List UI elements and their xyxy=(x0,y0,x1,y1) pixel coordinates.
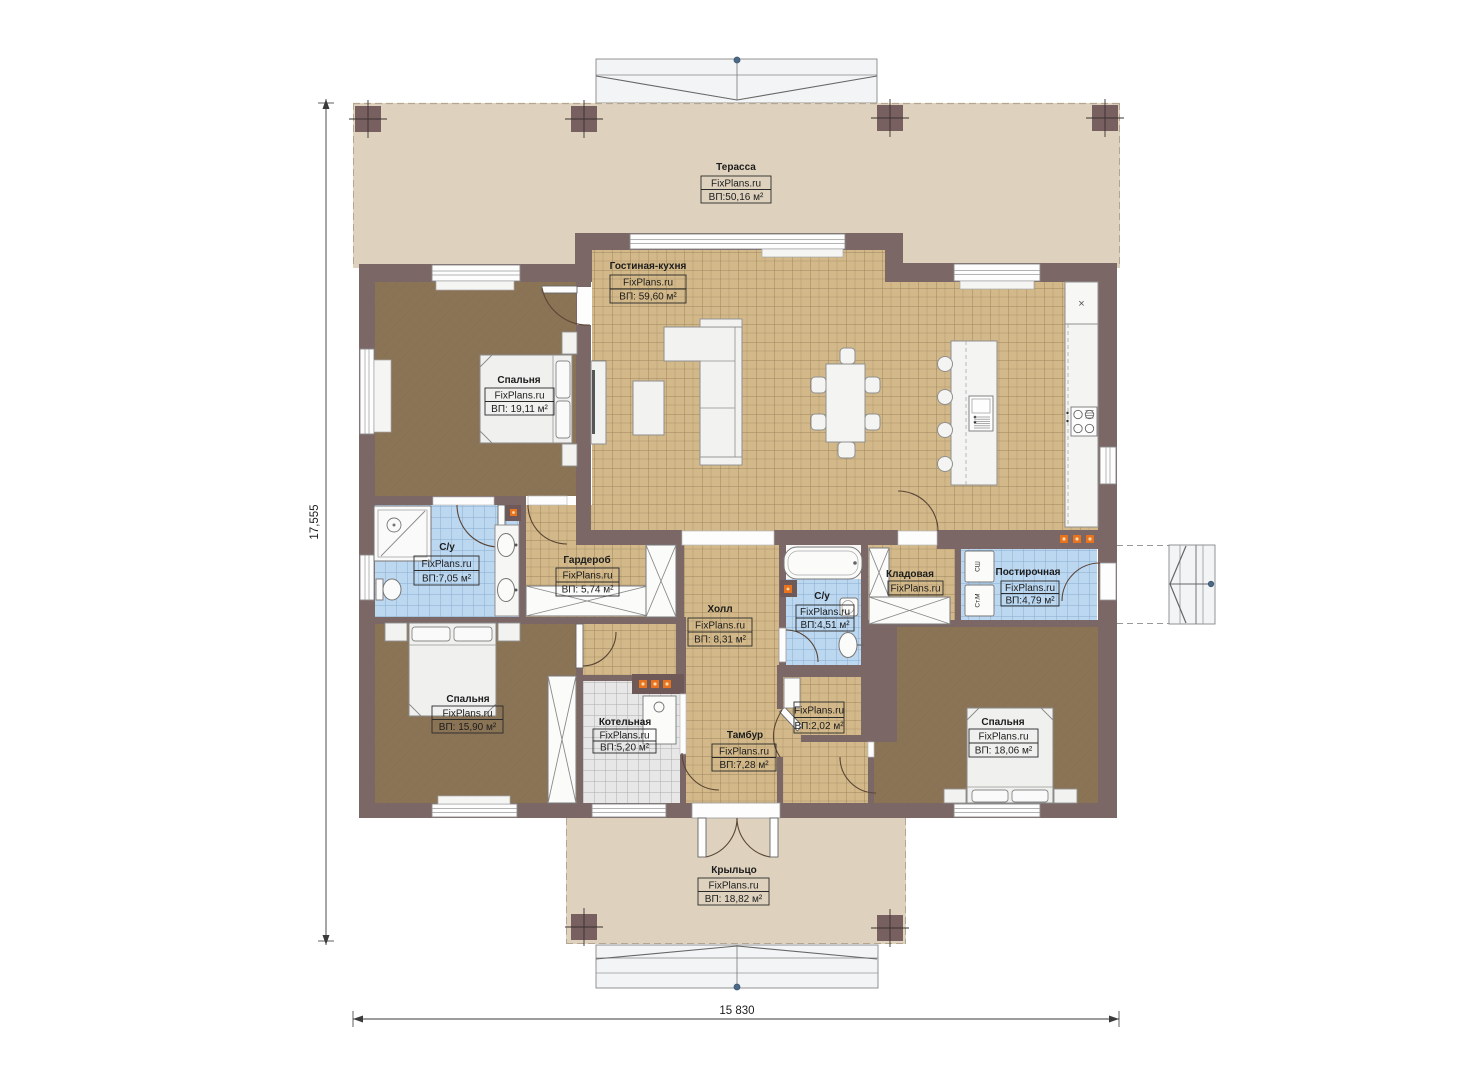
svg-text:ВП: 8,31 м²: ВП: 8,31 м² xyxy=(694,635,747,646)
svg-text:Крыльцо: Крыльцо xyxy=(711,865,757,876)
svg-text:FixPlans.ru: FixPlans.ru xyxy=(711,178,761,189)
svg-text:ВП:4,79 м²: ВП:4,79 м² xyxy=(1005,595,1055,606)
svg-text:×: × xyxy=(1078,298,1084,310)
svg-text:Тамбур: Тамбур xyxy=(727,729,763,741)
svg-text:FixPlans.ru: FixPlans.ru xyxy=(978,732,1028,743)
svg-text:Постирочная: Постирочная xyxy=(996,567,1061,578)
svg-text:ВП:2,02 м²: ВП:2,02 м² xyxy=(794,721,844,732)
svg-text:Холл: Холл xyxy=(707,604,732,615)
svg-text:ВП:7,05 м²: ВП:7,05 м² xyxy=(422,573,472,584)
svg-text:ВП:4,51 м²: ВП:4,51 м² xyxy=(800,620,850,631)
svg-text:ВП: 19,11 м²: ВП: 19,11 м² xyxy=(491,404,548,415)
svg-text:FixPlans.ru: FixPlans.ru xyxy=(562,571,612,582)
svg-text:ВП:50,16 м²: ВП:50,16 м² xyxy=(709,192,764,203)
svg-text:ВП:5,20 м²: ВП:5,20 м² xyxy=(600,743,650,754)
svg-text:FixPlans.ru: FixPlans.ru xyxy=(623,278,673,289)
svg-text:ВП: 18,82 м²: ВП: 18,82 м² xyxy=(705,894,763,905)
svg-text:Гостиная-кухня: Гостиная-кухня xyxy=(610,261,687,272)
svg-text:ВП: 15,90 м²: ВП: 15,90 м² xyxy=(439,722,497,733)
svg-text:FixPlans.ru: FixPlans.ru xyxy=(421,559,471,570)
svg-text:ВП: 18,06 м²: ВП: 18,06 м² xyxy=(975,746,1033,757)
svg-text:Ст.М: Ст.М xyxy=(975,593,982,607)
svg-text:ВП: 5,74 м²: ВП: 5,74 м² xyxy=(562,585,615,596)
svg-text:FixPlans.ru: FixPlans.ru xyxy=(442,708,492,719)
svg-text:Спальня: Спальня xyxy=(497,375,540,386)
svg-text:FixPlans.ru: FixPlans.ru xyxy=(1005,583,1055,594)
svg-text:С/у: С/у xyxy=(814,591,830,602)
svg-text:СШ: СШ xyxy=(975,561,982,572)
svg-text:Гардероб: Гардероб xyxy=(563,554,610,566)
svg-text:С/у: С/у xyxy=(439,542,455,553)
svg-text:FixPlans.ru: FixPlans.ru xyxy=(800,607,850,618)
svg-text:17,555: 17,555 xyxy=(309,504,321,539)
svg-text:FixPlans.ru: FixPlans.ru xyxy=(695,621,745,632)
svg-text:FixPlans.ru: FixPlans.ru xyxy=(890,584,940,595)
svg-text:FixPlans.ru: FixPlans.ru xyxy=(494,390,544,401)
svg-text:Терасса: Терасса xyxy=(716,162,756,173)
svg-text:Спальня: Спальня xyxy=(981,717,1024,728)
svg-text:Котельная: Котельная xyxy=(599,717,652,728)
svg-text:ВП: 59,60 м²: ВП: 59,60 м² xyxy=(619,292,677,303)
svg-text:FixPlans.ru: FixPlans.ru xyxy=(599,731,649,742)
svg-text:ВП:7,28 м²: ВП:7,28 м² xyxy=(719,760,769,771)
svg-text:15 830: 15 830 xyxy=(719,1005,754,1017)
svg-text:Спальня: Спальня xyxy=(446,694,489,705)
svg-text:Кладовая: Кладовая xyxy=(886,569,934,580)
svg-text:FixPlans.ru: FixPlans.ru xyxy=(708,880,758,891)
svg-text:FixPlans.ru: FixPlans.ru xyxy=(794,705,844,716)
svg-text:FixPlans.ru: FixPlans.ru xyxy=(719,746,769,757)
